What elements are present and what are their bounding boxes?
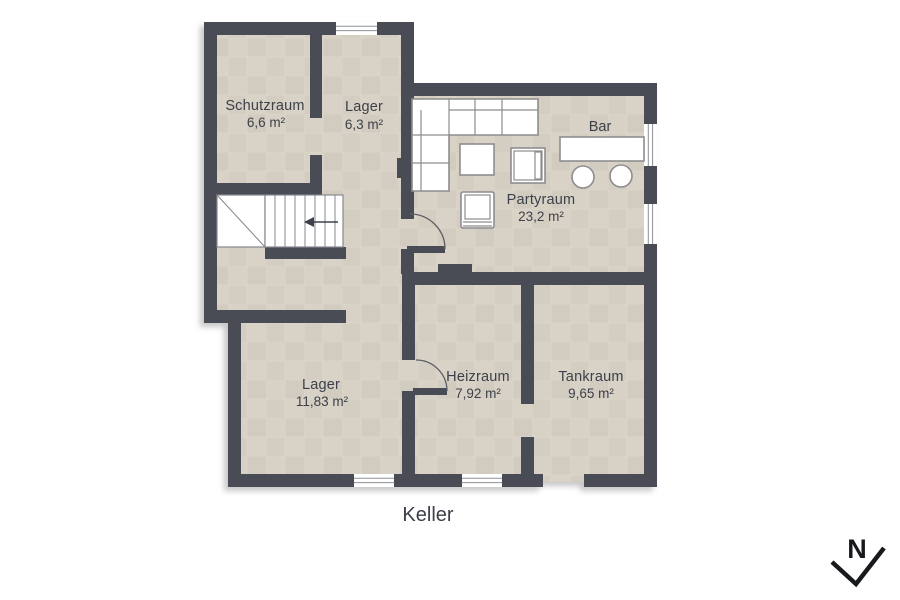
window-bottom-heizraum	[462, 474, 502, 487]
wall-partyraum-top	[402, 83, 657, 96]
wall-tankraum-divider-lower	[521, 437, 534, 475]
bar-label: Bar	[589, 119, 612, 135]
room-area-schutzraum: 6,6 m²	[247, 115, 286, 130]
wall-heizraum-divider-upper	[402, 285, 415, 360]
window-glass	[462, 474, 502, 487]
room-label-lager-klein: Lager	[345, 99, 383, 115]
bar-counter	[560, 137, 644, 161]
stair-treads	[265, 195, 343, 247]
room-area-lager-gross: 11,83 m²	[296, 394, 349, 409]
room-area-lager-klein: 6,3 m²	[345, 117, 384, 132]
compass-letter: N	[847, 534, 867, 564]
floor-plan	[204, 22, 657, 487]
window-bottom-lager	[354, 474, 394, 487]
north-compass: N	[832, 534, 884, 584]
wall-schutzraum-divider-lower	[310, 155, 322, 183]
wall-lowerblock-left	[228, 318, 241, 487]
room-label-partyraum: Partyraum	[507, 192, 576, 208]
wall-schutzraum-bottom	[204, 183, 322, 195]
wall-upperblock-bottom	[204, 310, 346, 323]
window-glass	[644, 124, 657, 166]
floor-south-opening	[542, 474, 585, 482]
window-glass	[644, 204, 657, 244]
wall-upper-right	[401, 22, 414, 95]
floor-plan-canvas: Schutzraum 6,6 m² Lager 6,3 m² Bar Party…	[0, 0, 900, 600]
window-right-partyraum	[644, 204, 657, 244]
bar-stool	[610, 165, 632, 187]
window-top	[336, 22, 377, 35]
wall-tankraum-divider-upper	[521, 285, 534, 404]
room-label-schutzraum: Schutzraum	[225, 98, 304, 114]
wall-left	[204, 22, 217, 323]
wall-chimney-stub	[438, 264, 472, 274]
room-area-partyraum: 23,2 m²	[518, 209, 564, 224]
room-label-lager-gross: Lager	[302, 377, 340, 393]
door-leaf-heizraum	[413, 388, 447, 395]
wall-top	[204, 22, 414, 35]
window-glass	[354, 474, 394, 487]
door-leaf-partyraum	[407, 246, 445, 253]
room-label-tankraum: Tankraum	[558, 369, 623, 385]
room-area-tankraum: 9,65 m²	[568, 386, 614, 401]
window-glass	[336, 22, 377, 35]
floor-plan-page: Schutzraum 6,6 m² Lager 6,3 m² Bar Party…	[0, 0, 900, 600]
window-right-bar	[644, 124, 657, 166]
armchair	[461, 192, 494, 228]
staircase	[217, 195, 343, 247]
wall-stairwell-south	[265, 247, 346, 259]
tv-table-outline	[511, 148, 545, 183]
plan-title: Keller	[402, 504, 453, 526]
wall-heizraum-divider-lower	[402, 391, 415, 475]
wall-schutzraum-divider-upper	[310, 35, 322, 118]
bar-stool	[572, 166, 594, 188]
tv-table	[511, 148, 545, 183]
room-area-heizraum: 7,92 m²	[455, 386, 501, 401]
room-label-heizraum: Heizraum	[446, 369, 510, 385]
side-table	[460, 144, 494, 175]
